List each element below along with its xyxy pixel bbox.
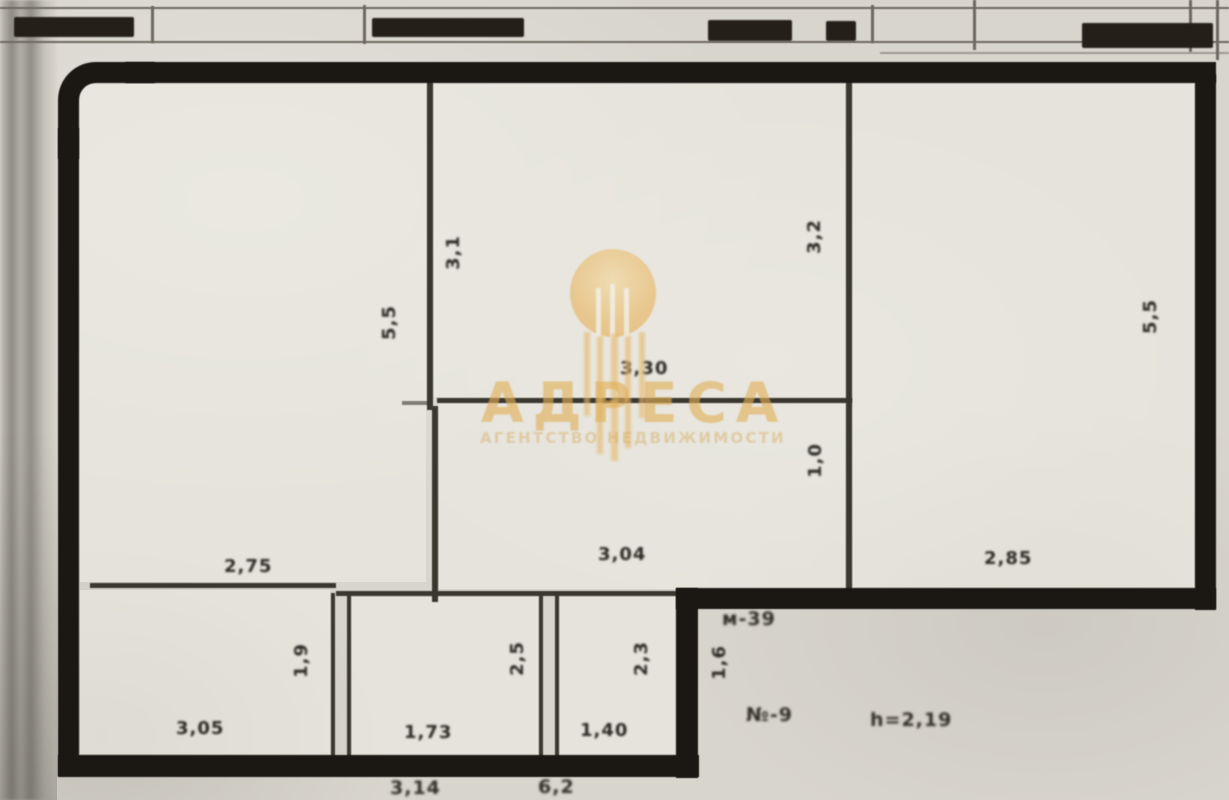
dim-topleft-height: 5,5 <box>379 305 400 340</box>
partition-middle-horizontal <box>437 398 852 403</box>
dim-bottomleft-height: 1,9 <box>291 643 312 678</box>
partition-left-vertical-lower <box>432 406 438 602</box>
top-band-divider-3 <box>871 5 874 43</box>
page-edge-shadow <box>0 430 57 800</box>
top-band-divider-1 <box>151 6 154 43</box>
dim-topmiddle-width: 3,30 <box>620 358 668 379</box>
top-band-line-1 <box>0 7 1229 9</box>
dim-right-height-left: 3,2 <box>804 219 825 254</box>
wall-mid-horizontal <box>676 588 1216 609</box>
dim-bottomright-width: 1,40 <box>580 720 628 741</box>
top-band-divider-2 <box>363 5 366 44</box>
partition-bottom-double-1b <box>347 593 351 757</box>
dim-step-niche-height: 1,6 <box>709 645 730 680</box>
partition-bottom-double-1a <box>331 593 335 757</box>
wall-top <box>125 62 1216 83</box>
door-jamb <box>402 401 429 405</box>
dim-midcenter-width: 3,04 <box>598 544 646 565</box>
wall-bottom <box>58 755 699 777</box>
partition-bottom-double-2b <box>555 593 559 757</box>
neighbor-wall-segment-3 <box>708 20 792 41</box>
top-band-divider-6 <box>1216 0 1219 60</box>
partition-bottom-double-2a <box>539 593 543 757</box>
room-right <box>853 84 1194 587</box>
dim-bottomleft-width: 3,05 <box>176 718 224 739</box>
dim-midcenter-height: 1,0 <box>805 443 826 478</box>
neighbor-wall-segment-1 <box>14 17 134 37</box>
dim-topmiddle-height: 3,1 <box>443 235 464 270</box>
partition-right-vertical <box>846 80 852 594</box>
neighbor-wall-segment-4 <box>826 21 856 41</box>
partition-left-vertical <box>427 80 433 410</box>
top-band-line-2 <box>0 41 1229 43</box>
dim-right-height-right: 5,5 <box>1140 299 1161 334</box>
partition-bottomrooms-top-b <box>336 591 683 596</box>
note-ceiling-height: h=2,19 <box>870 709 952 731</box>
neighbor-wall-segment-5 <box>1082 23 1213 48</box>
dim-bottommiddle-width: 1,73 <box>404 722 452 743</box>
wall-right <box>1195 74 1216 610</box>
partition-bottomrooms-top-a <box>90 583 336 588</box>
note-bottom-edge-1: 3,14 <box>390 777 441 799</box>
dim-right-width: 2,85 <box>984 548 1032 569</box>
neighbor-wall-segment-2 <box>372 18 524 37</box>
note-bottom-edge-2: 6,2 <box>538 776 575 798</box>
top-band-line-3 <box>880 52 1229 54</box>
dim-topleft-width: 2,75 <box>224 556 272 577</box>
top-band-divider-4 <box>973 0 976 50</box>
note-room-mark: м-39 <box>722 608 776 630</box>
floorplan-scan: 5,5 2,75 3,1 3,30 3,2 5,5 2,85 1,0 3,04 … <box>0 0 1229 800</box>
wall-step-vertical <box>676 588 698 778</box>
note-apartment-mark: №-9 <box>746 704 793 726</box>
dim-bottomright-height: 2,3 <box>631 641 652 676</box>
dim-bottommiddle-height: 2,5 <box>507 641 528 676</box>
room-top-middle <box>434 84 845 397</box>
wall-left <box>58 128 79 776</box>
